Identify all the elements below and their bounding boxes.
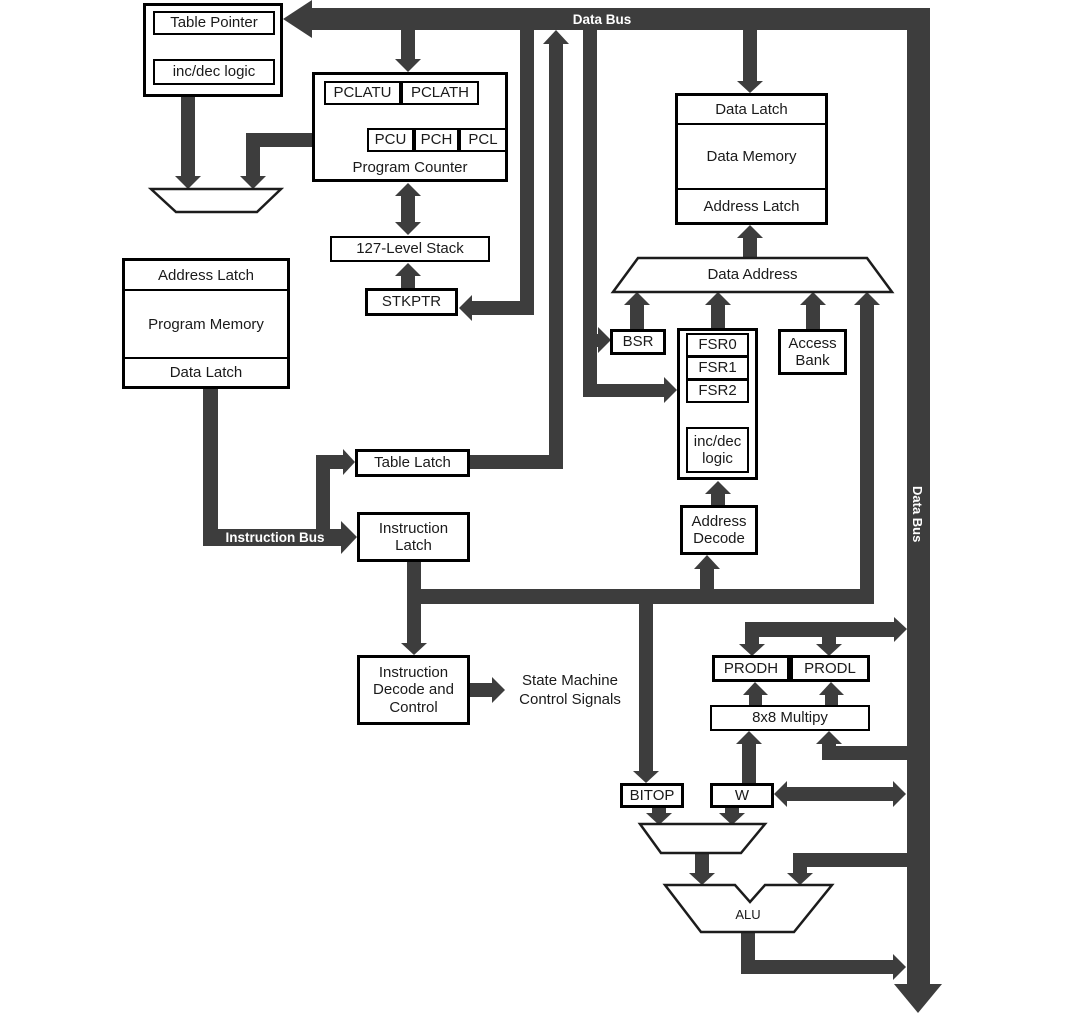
stack-box: 127-Level Stack: [330, 236, 490, 262]
inc-dec-logic-top-box: inc/dec logic: [153, 59, 275, 85]
pcu-box: PCU: [367, 128, 414, 152]
conn-bitop-alumux: [646, 808, 672, 825]
address-decode-box: Address Decode: [680, 505, 758, 555]
block-diagram: Data Bus Data Bus Instruction Bus Table …: [0, 0, 1080, 1018]
bitop-box: BITOP: [620, 783, 684, 808]
fsr0-box: FSR0: [686, 333, 749, 357]
conn-w-bus: [774, 781, 906, 807]
prog-data-latch: Data Latch: [125, 359, 287, 386]
right-data-bus-label: Data Bus: [905, 468, 930, 560]
prodl-box: PRODL: [790, 655, 870, 682]
conn-bus-alu: [787, 853, 910, 885]
state-machine-label: State Machine Control Signals: [500, 668, 640, 712]
conn-pc-progmux: [240, 133, 312, 189]
program-counter-label: Program Counter: [312, 157, 508, 179]
conn-accessbank-dataaddress: [800, 292, 826, 329]
pch-box: PCH: [414, 128, 459, 152]
conn-bus-multiply: [816, 731, 910, 760]
conn-fsr-dataaddress: [705, 292, 731, 328]
conn-pc-stack: [395, 183, 421, 235]
conn-dataaddress-addresslatch: [737, 225, 763, 259]
inc-dec-logic-fsr-box: inc/dec logic: [686, 427, 749, 473]
fsr1-box: FSR1: [686, 356, 749, 380]
conn-bus-pclatu: [395, 30, 421, 72]
program-memory-group: Address Latch Program Memory Data Latch: [122, 258, 290, 389]
conn-addressdecode-incdec: [705, 481, 731, 505]
multiply-box: 8x8 Multipy: [710, 705, 870, 731]
conn-instrbus-tablelatch: [316, 449, 355, 540]
w-register-box: W: [710, 783, 774, 808]
access-bank-box: Access Bank: [778, 329, 847, 375]
conn-prod-bus: [739, 617, 907, 656]
conn-w-multiply: [736, 731, 762, 783]
prodh-box: PRODH: [712, 655, 790, 682]
conn-bus-memdatalatch: [737, 30, 763, 93]
instruction-latch-box: Instruction Latch: [357, 512, 470, 562]
instruction-bus-label: Instruction Bus: [210, 529, 340, 546]
long-instruction-bus: [407, 562, 874, 604]
stkptr-box: STKPTR: [365, 288, 458, 316]
data-memory-group: Data Latch Data Memory Address Latch: [675, 93, 828, 225]
conn-tablepointer-progmux: [175, 97, 201, 189]
conn-longbus-instrdecode: [401, 604, 427, 655]
instruction-decode-box: Instruction Decode and Control: [357, 655, 470, 725]
program-address-mux: [151, 189, 281, 212]
mem-address-latch: Address Latch: [678, 190, 825, 222]
alu-input-mux: [640, 824, 765, 853]
conn-stkptr-stack: [395, 263, 421, 288]
pclath-box: PCLATH: [401, 81, 479, 105]
alu-label: ALU: [700, 905, 796, 925]
conn-multiply-prodh: [743, 682, 768, 705]
conn-alumux-alu: [689, 853, 715, 885]
conn-alu-bus: [741, 932, 906, 980]
conn-longbus-dataaddress: [854, 292, 880, 604]
conn-bsr-dataaddress: [624, 292, 650, 330]
mem-data-latch: Data Latch: [678, 96, 825, 125]
fsr2-box: FSR2: [686, 379, 749, 403]
top-data-bus-label: Data Bus: [560, 9, 644, 29]
data-address-label: Data Address: [640, 262, 865, 288]
table-latch-box: Table Latch: [355, 449, 470, 477]
bsr-box: BSR: [610, 329, 666, 355]
pcl-box: PCL: [459, 128, 507, 152]
conn-w-alumux: [719, 808, 745, 825]
data-memory: Data Memory: [678, 125, 825, 190]
program-memory: Program Memory: [125, 291, 287, 359]
pclatu-box: PCLATU: [324, 81, 401, 105]
prog-address-latch: Address Latch: [125, 261, 287, 291]
table-pointer-box: Table Pointer: [153, 11, 275, 35]
conn-multiply-prodl: [819, 682, 844, 705]
